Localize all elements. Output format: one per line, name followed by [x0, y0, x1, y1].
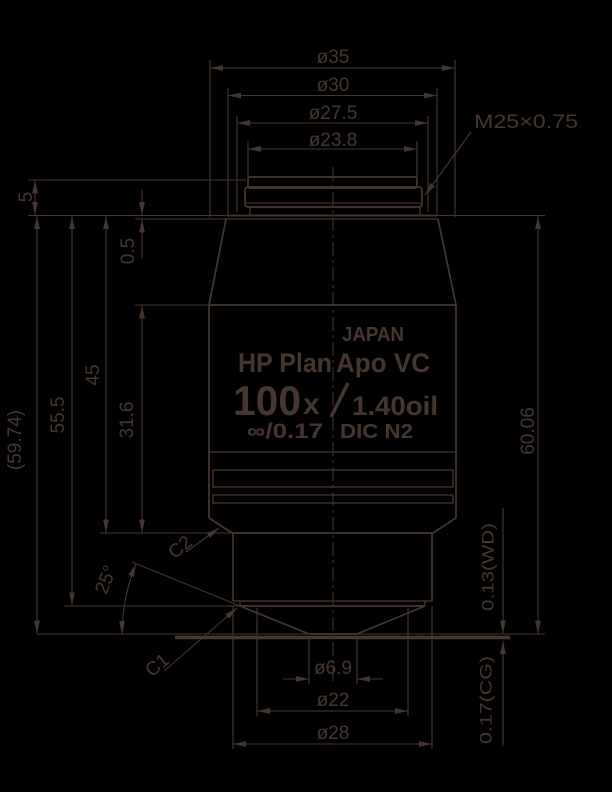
angle-arc — [122, 564, 136, 634]
body-chamfer-right — [433, 518, 456, 533]
dim-label-cg: 0.17(CG) — [476, 656, 495, 744]
angle-dimension: 25° — [91, 562, 309, 634]
top-diameter-dimensions: ø35 ø30 ø27.5 ø23.8 — [210, 47, 455, 217]
label-slash-divider — [331, 383, 348, 417]
right-length-dimensions: 60.06 0.13(WD) 0.17(CG) — [476, 216, 539, 746]
label-aperture: 1.40oil — [352, 391, 438, 421]
body-chamfer-left — [209, 518, 232, 533]
thread-base-band — [250, 207, 420, 216]
dim-label-31-6: 31.6 — [117, 402, 138, 439]
chamfer-callouts: C2 C1 — [142, 528, 237, 681]
thread-leader-line — [425, 132, 471, 195]
label-series-right: Apo VC — [336, 348, 430, 378]
objective-technical-drawing: JAPAN HP Plan Apo VC 100 x 1.40oil ∞/0.1… — [0, 0, 612, 792]
dim-label-thread: M25×0.75 — [474, 112, 578, 133]
label-mag-x: x — [303, 388, 320, 421]
label-magnification: 100 — [233, 377, 301, 424]
angle-ray-line — [132, 562, 309, 634]
cone-left-edge — [209, 219, 226, 305]
objective-outline — [175, 177, 510, 638]
dim-label-59-74: (59.74) — [5, 410, 26, 470]
tip-cone-right — [357, 606, 425, 634]
dim-label-angle: 25° — [91, 563, 121, 598]
dim-label-55-5: 55.5 — [48, 397, 69, 434]
label-tube-spec: ∞/0.17 — [247, 420, 323, 443]
dim-label-c1: C1 — [142, 650, 174, 682]
label-series-left: HP Plan — [238, 348, 332, 378]
thread-callout: M25×0.75 — [425, 112, 578, 195]
dim-label-c2: C2 — [165, 532, 197, 564]
dim-label-60-06: 60.06 — [518, 407, 539, 455]
drawing-page: JAPAN HP Plan Apo VC 100 x 1.40oil ∞/0.1… — [0, 0, 612, 792]
dim-label-45: 45 — [83, 364, 104, 385]
dim-label-d22: ø22 — [317, 690, 350, 711]
label-country: JAPAN — [342, 324, 404, 346]
cone-right-edge — [438, 219, 456, 305]
c1-leader-line — [164, 608, 237, 671]
dim-label-d30: ø30 — [317, 75, 350, 96]
dim-label-d27-5: ø27.5 — [309, 103, 358, 124]
dim-label-wd: 0.13(WD) — [478, 523, 497, 611]
dim-label-d35: ø35 — [317, 47, 350, 68]
objective-engraving: JAPAN HP Plan Apo VC 100 x 1.40oil ∞/0.1… — [233, 324, 438, 443]
dim-label-0-5: 0.5 — [118, 238, 139, 264]
dim-label-5: 5 — [16, 192, 37, 203]
dim-label-d6-9: ø6.9 — [314, 658, 352, 679]
dim-label-d28: ø28 — [317, 723, 350, 744]
dim-label-d23-8: ø23.8 — [309, 130, 358, 151]
label-contrast: DIC N2 — [340, 421, 413, 443]
